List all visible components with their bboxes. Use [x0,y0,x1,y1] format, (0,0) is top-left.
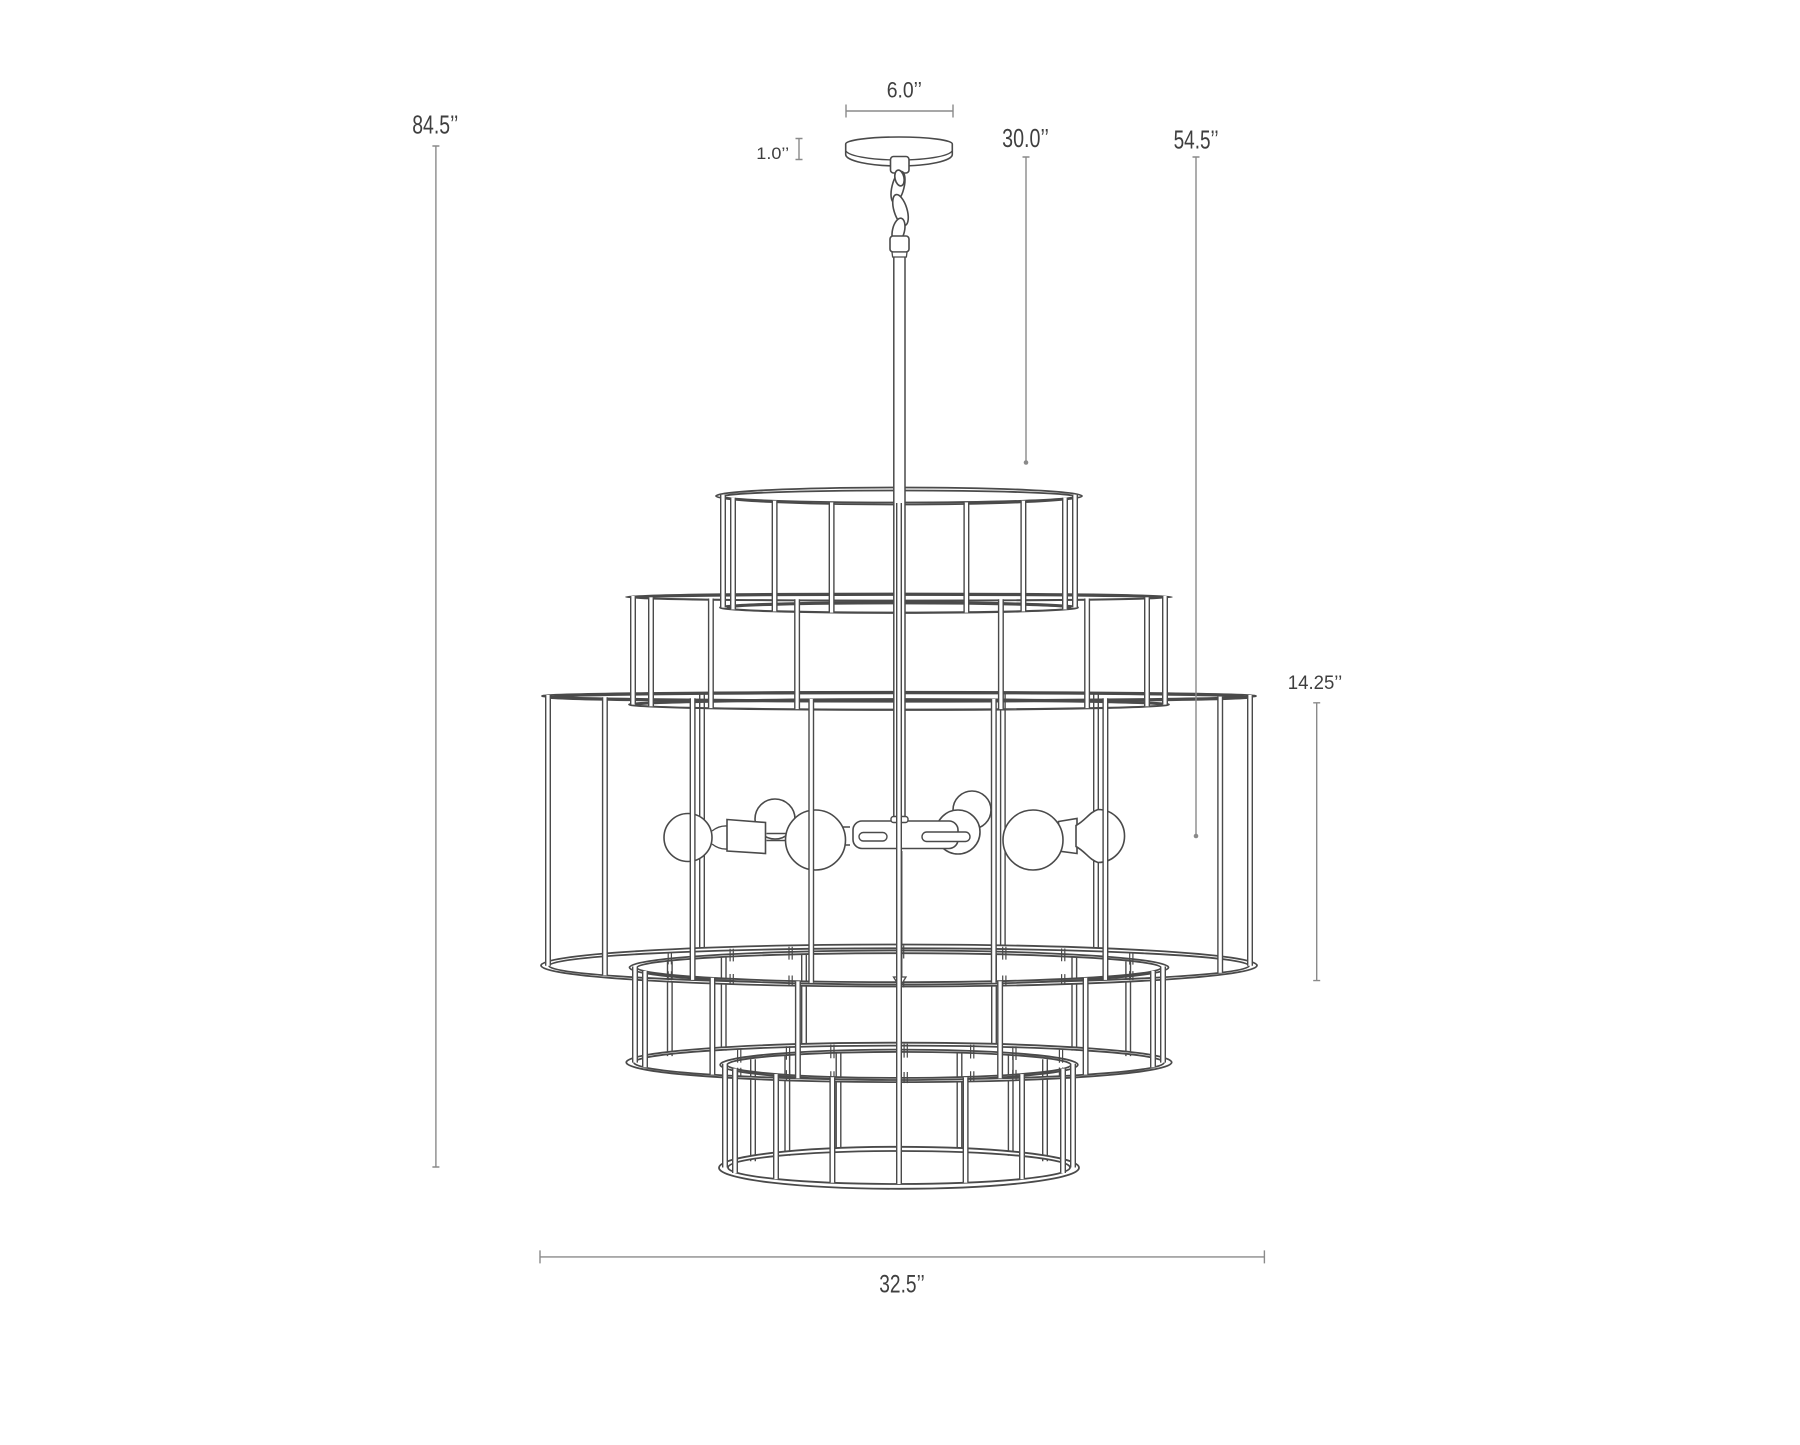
svg-text:30.0’’: 30.0’’ [1002,123,1049,153]
svg-text:54.5’’: 54.5’’ [1174,124,1219,154]
svg-text:1.0’’: 1.0’’ [756,144,789,163]
svg-text:6.0’’: 6.0’’ [887,78,922,103]
svg-text:14.25’’: 14.25’’ [1288,673,1343,694]
svg-text:84.5’’: 84.5’’ [412,109,458,139]
svg-text:32.5’’: 32.5’’ [879,1271,925,1299]
